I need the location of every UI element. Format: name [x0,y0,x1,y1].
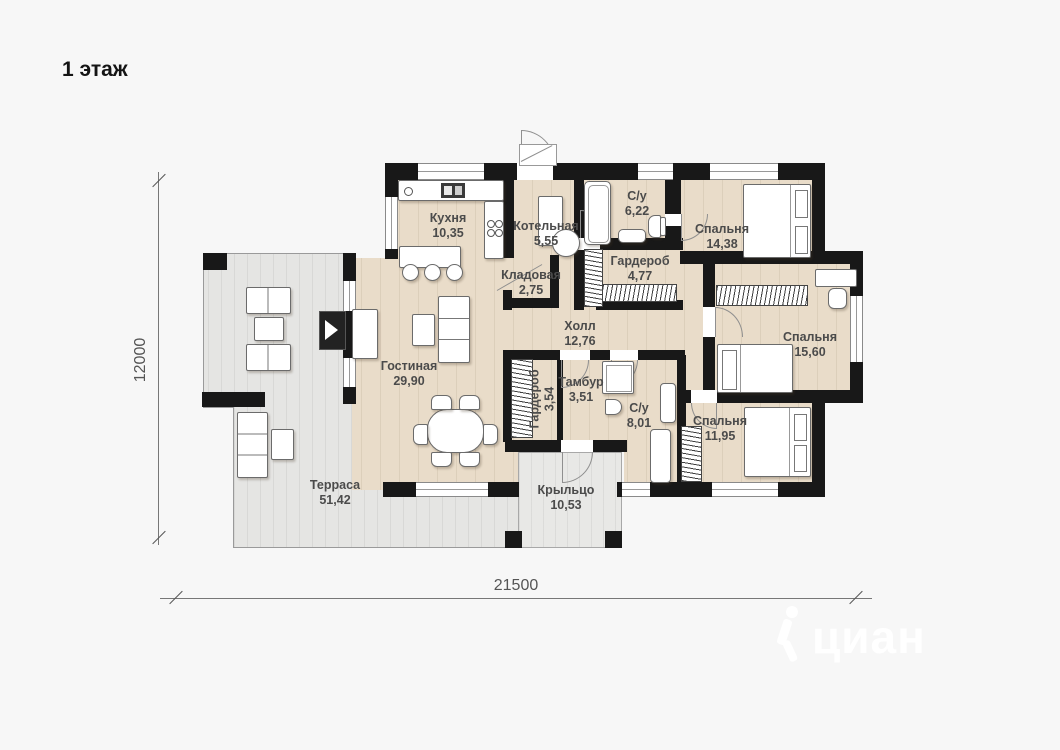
room-area: 12,76 [564,334,595,349]
double-bed-icon [743,184,811,258]
sink-icon [660,383,676,423]
kitchen-hob-icon [404,187,413,196]
fireplace-icon [319,311,346,350]
window-icon [850,296,863,362]
door-opening [691,390,717,403]
room-label-terrace: Терраса51,42 [310,478,360,507]
toilet-icon [605,399,622,415]
bathtub-icon [584,181,611,245]
room-label-hall: Холл12,76 [564,319,595,348]
window-icon [638,163,673,180]
dimension-value: 12000 [132,338,150,383]
room-name: Крыльцо [538,483,595,498]
wall-segment [203,253,227,270]
room-label-wardrobe-2: Гардероб3,54 [528,369,557,428]
wall-segment [202,392,265,407]
room-label-boiler: Котельная5,55 [513,219,578,248]
room-name: Гостиная [381,359,438,374]
wall-segment [665,226,681,250]
bar-stool-icon [446,264,463,281]
room-label-bedroom-3: Спальня11,95 [693,414,747,443]
toilet-tank-icon [660,217,666,236]
room-label-bedroom-1: Спальня14,38 [695,222,749,251]
room-area: 14,38 [695,237,749,252]
room-name: С/у [627,401,651,416]
dimension-line [158,172,159,545]
wall-segment [343,253,356,281]
room-name: Гардероб [610,254,669,269]
room-name: Гардероб [528,369,543,428]
room-name: Спальня [695,222,749,237]
terrace-edge [203,253,204,408]
room-name: С/у [625,189,649,204]
closet-shelf-icon [716,285,808,306]
door-opening [665,214,681,226]
room-area: 10,35 [430,226,467,241]
wall-segment [505,531,522,548]
room-area: 51,42 [310,493,360,508]
window-icon [343,281,356,311]
room-label-wardrobe-1: Гардероб4,77 [610,254,669,283]
room-name: Спальня [783,330,837,345]
watermark-logo-icon [782,639,799,662]
watermark-text: циан [812,610,926,664]
wall-segment [703,337,715,395]
room-name: Котельная [513,219,578,234]
watermark: циан [770,598,950,676]
room-name: Кладовая [501,268,561,283]
nightstand-icon [828,288,847,309]
window-icon [710,163,778,180]
window-icon [416,482,488,497]
wardrobe-shelf-icon [584,249,603,307]
room-label-porch: Крыльцо10,53 [538,483,595,512]
chair-icon [413,424,428,445]
room-name: Кухня [430,211,467,226]
terrace-edge [203,407,234,408]
shower-icon [602,361,634,394]
armchair-icon [412,314,435,346]
window-icon [418,163,484,180]
bar-stool-icon [402,264,419,281]
room-area: 2,75 [501,283,561,298]
bar-stool-icon [424,264,441,281]
room-area: 10,53 [538,498,595,513]
chair-icon [459,395,480,410]
room-label-bath-2: С/у8,01 [627,401,651,430]
wall-segment [605,531,622,548]
room-label-kitchen: Кухня10,35 [430,211,467,240]
room-area: 29,90 [381,374,438,389]
terrace-edge [233,407,234,548]
dimension-line [160,598,872,599]
chair-icon [483,424,498,445]
chair-icon [459,452,480,467]
room-label-bedroom-2: Спальня15,60 [783,330,837,359]
shelf-icon [815,269,857,287]
window-icon [343,358,356,387]
door-opening [703,307,715,337]
door-opening [561,440,593,452]
room-label-vestibule: Тамбур3,51 [558,375,603,404]
room-name: Тамбур [558,375,603,390]
single-bed-icon [717,344,793,393]
sofa-icon [237,412,268,478]
window-icon [385,197,398,249]
room-area: 3,54 [542,369,557,428]
double-bed-icon [744,407,811,477]
window-icon [622,482,650,497]
sofa-icon [438,296,470,363]
room-area: 6,22 [625,204,649,219]
wardrobe-shelf-icon [602,284,677,302]
stove-burners-icon [486,219,503,238]
terrace-edge [233,547,519,548]
dining-table-icon [427,409,484,453]
kitchen-sink-icon [441,183,465,198]
side-table-icon [271,429,294,460]
room-label-bath-1: С/у6,22 [625,189,649,218]
wall-segment [703,257,715,309]
coffee-table-icon [254,317,284,341]
room-name: Спальня [693,414,747,429]
wall-segment [812,390,825,497]
window-icon [712,482,778,497]
loveseat-icon [246,287,291,314]
door-opening [560,350,590,360]
room-label-living: Гостиная29,90 [381,359,438,388]
door-opening [610,350,638,360]
dimension-value: 21500 [494,577,539,595]
room-name: Холл [564,319,595,334]
loveseat-icon [246,344,291,371]
sink-icon [618,229,646,243]
room-area: 3,51 [558,390,603,405]
wall-segment [343,387,356,404]
wall-segment [812,163,825,264]
room-area: 5,55 [513,234,578,249]
watermark-logo-icon [786,606,798,618]
chair-icon [431,395,452,410]
wall-segment [574,248,584,310]
tv-stand-icon [352,309,378,359]
room-area: 11,95 [693,429,747,444]
room-area: 4,77 [610,269,669,284]
chair-icon [431,452,452,467]
room-area: 15,60 [783,345,837,360]
bathtub-icon [650,429,671,483]
room-name: Терраса [310,478,360,493]
entry-step-icon [519,144,557,166]
room-area: 8,01 [627,416,651,431]
room-label-pantry: Кладовая2,75 [501,268,561,297]
